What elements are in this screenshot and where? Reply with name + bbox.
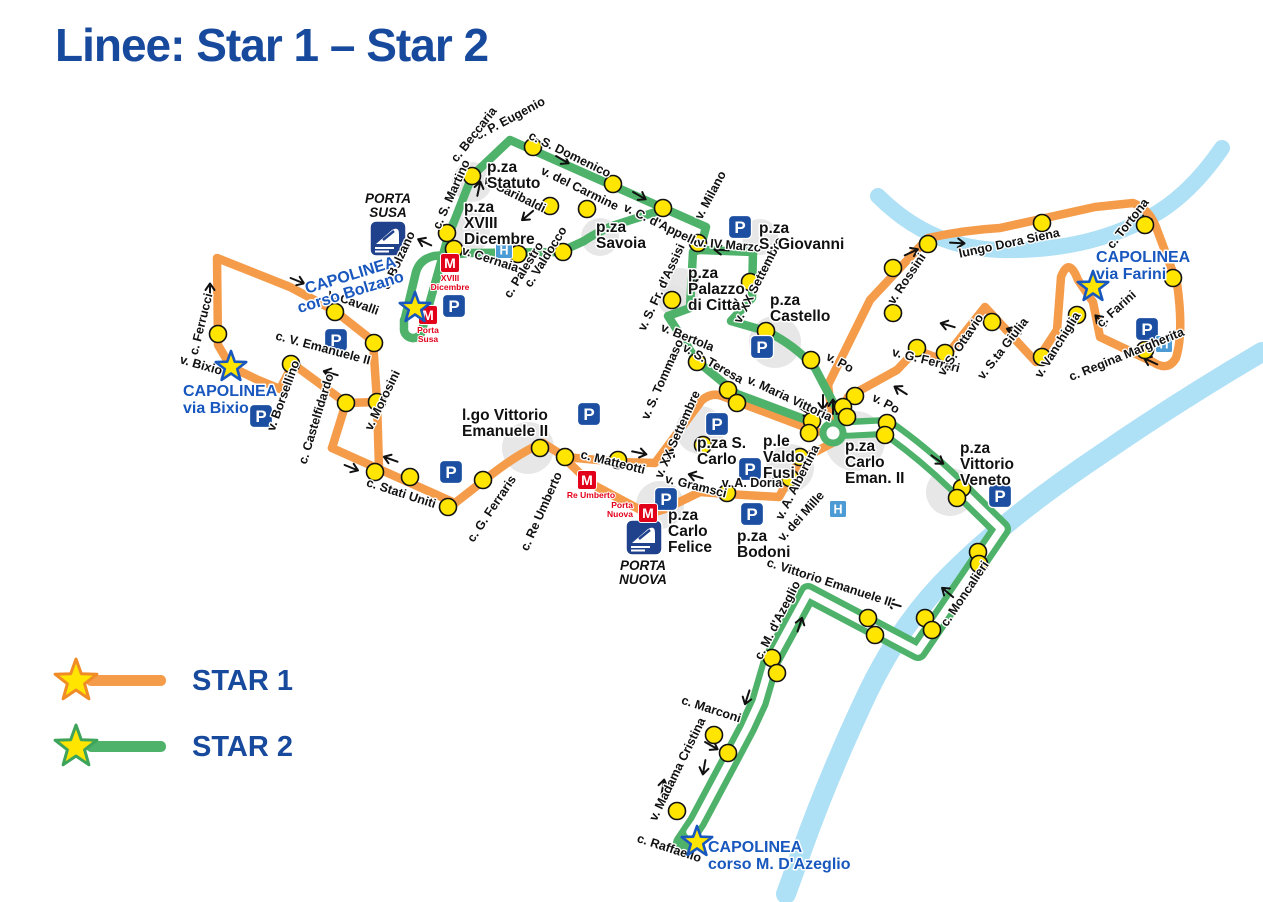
metro-station-label: Re Umberto: [567, 490, 615, 500]
piazza-label: Castello: [770, 308, 830, 325]
parking-icon: P: [578, 403, 601, 426]
legend-item-star2: STAR 2: [48, 714, 293, 780]
piazza-label: Eman. II: [845, 470, 904, 487]
svg-text:M: M: [444, 255, 456, 271]
street-label: v. Bixio: [178, 352, 224, 378]
piazza-label: Carlo: [697, 451, 737, 468]
piazza-label: p.za: [464, 199, 495, 216]
terminus-label: CAPOLINEA: [1096, 249, 1191, 266]
bus-stop: [475, 472, 492, 489]
bus-stop: [839, 409, 856, 426]
transit-map-page: Linee: Star 1 – Star 2 PORTASUSAPORTANUO…: [0, 0, 1263, 902]
piazza-label: p.za: [688, 265, 719, 282]
piazza-label: Palazzo: [688, 281, 745, 298]
svg-text:P: P: [711, 415, 722, 434]
svg-text:P: P: [756, 338, 767, 357]
direction-arrow-icon: [631, 447, 647, 459]
bus-stop: [885, 260, 902, 277]
legend-item-star1: STAR 1: [48, 648, 293, 714]
bus-stop: [579, 201, 596, 218]
piazza-label: Felice: [668, 539, 712, 556]
piazza-label: Carlo: [668, 523, 708, 540]
piazza-label: Savoia: [596, 235, 646, 252]
parking-icon: P: [741, 503, 764, 526]
piazza-label: Emanuele II: [462, 423, 548, 440]
bus-stop: [664, 292, 681, 309]
street-label: c. G. Ferraris: [464, 473, 519, 545]
piazza-label: p.za: [960, 440, 991, 457]
metro-icon: M: [441, 254, 460, 273]
station-label: PORTA: [620, 558, 666, 573]
svg-text:P: P: [746, 505, 757, 524]
piazza-label: p.za S.: [697, 435, 746, 452]
direction-arrow-icon: [892, 383, 909, 398]
metro-icon: M: [578, 471, 597, 490]
terminus-label: corso M. D'Azeglio: [708, 856, 851, 873]
star2-line-swatch: [86, 741, 166, 752]
street-label: v. S. Tommaso: [638, 337, 686, 422]
metro-icon: M: [639, 504, 658, 523]
street-label: v. Milano: [692, 168, 729, 221]
bus-stop: [924, 622, 941, 639]
piazza-label: Carlo: [845, 454, 885, 471]
terminus-label: CAPOLINEA: [708, 839, 803, 856]
metro-station-label: Nuova: [607, 509, 633, 519]
svg-text:P: P: [445, 463, 456, 482]
svg-text:P: P: [448, 297, 459, 316]
piazza-label: p.za: [668, 507, 699, 524]
piazza-label: XVIII: [464, 215, 498, 232]
piazza-label: S. Giovanni: [759, 236, 844, 253]
bus-stop: [801, 425, 818, 442]
bus-stop: [729, 395, 746, 412]
svg-text:M: M: [642, 505, 654, 521]
street-label: c. Re Umberto: [518, 469, 565, 552]
bus-stop: [706, 727, 723, 744]
bus-stop: [210, 326, 227, 343]
svg-text:H: H: [833, 503, 842, 517]
bus-stop: [885, 305, 902, 322]
piazza-label: p.za: [770, 292, 801, 309]
bus-stop: [877, 427, 894, 444]
piazza-label: p.za: [596, 219, 627, 236]
legend-label-star1: STAR 1: [192, 665, 293, 698]
station-label: PORTA: [365, 191, 411, 206]
bus-stop: [769, 665, 786, 682]
piazza-label: p.za: [487, 159, 518, 176]
bus-stop: [440, 499, 457, 516]
bus-stop: [1165, 270, 1182, 287]
metro-station-label: Dicembre: [431, 282, 470, 292]
terminus-label: CAPOLINEA: [183, 383, 278, 400]
piazza-label: Vittorio: [960, 456, 1014, 473]
piazza-label: p.za: [759, 220, 790, 237]
star1-star-icon: [55, 659, 97, 699]
metro-station-label: Susa: [418, 334, 439, 344]
piazza-label: Statuto: [487, 175, 540, 192]
parking-icon: P: [443, 295, 466, 318]
hospital-icon: H: [830, 501, 847, 518]
station-label: NUOVA: [619, 572, 667, 587]
bus-stop: [984, 314, 1001, 331]
direction-arrow-icon: [698, 759, 709, 775]
legend: STAR 1 STAR 2: [48, 648, 293, 780]
star1-line-swatch: [86, 675, 166, 686]
terminus-label: via Farini: [1096, 266, 1166, 283]
parking-icon: P: [440, 461, 463, 484]
piazza-label: Fusi: [763, 465, 795, 482]
bus-stop: [920, 236, 937, 253]
legend-label-star2: STAR 2: [192, 731, 293, 764]
svg-text:P: P: [734, 218, 745, 237]
route-turn-loop: [823, 423, 843, 443]
direction-arrow-icon: [940, 319, 956, 332]
street-label: c. Marconi: [680, 693, 743, 725]
piazza-label: Valdo: [763, 449, 804, 466]
direction-arrow-icon: [416, 235, 433, 249]
piazza-label: Dicembre: [464, 231, 535, 248]
bus-stop: [338, 395, 355, 412]
bus-stop: [720, 745, 737, 762]
bus-stop: [803, 352, 820, 369]
piazza-label: p.za: [737, 528, 768, 545]
star2-line-icon: [48, 720, 178, 774]
piazza-label: di Città: [688, 297, 741, 314]
street-label: c. Regina Margherita: [1067, 324, 1187, 383]
train-station-icon: [626, 520, 662, 555]
star1-line-icon: [48, 654, 178, 708]
svg-text:P: P: [994, 487, 1005, 506]
terminus-label: via Bixio: [183, 400, 249, 417]
piazza-label: Veneto: [960, 472, 1011, 489]
svg-text:M: M: [581, 472, 593, 488]
direction-arrow-icon: [382, 453, 399, 466]
bus-stop: [867, 627, 884, 644]
star2-star-icon: [55, 725, 97, 765]
bus-stop: [557, 449, 574, 466]
bus-stop: [402, 469, 419, 486]
station-label: SUSA: [369, 205, 407, 220]
parking-icon: P: [706, 413, 729, 436]
piazza-label: p.le: [763, 433, 790, 450]
street-label: c. Ferrucci: [187, 292, 216, 357]
bus-stop: [532, 440, 549, 457]
parking-icon: P: [751, 336, 774, 359]
piazza-label: l.go Vittorio: [462, 407, 548, 424]
bus-stop: [366, 335, 383, 352]
piazza-label: Bodoni: [737, 544, 790, 561]
bus-stop: [860, 610, 877, 627]
parking-icon: P: [729, 216, 752, 239]
bus-stop: [949, 490, 966, 507]
bus-stop: [669, 803, 686, 820]
piazza-label: p.za: [845, 438, 876, 455]
svg-text:P: P: [583, 405, 594, 424]
